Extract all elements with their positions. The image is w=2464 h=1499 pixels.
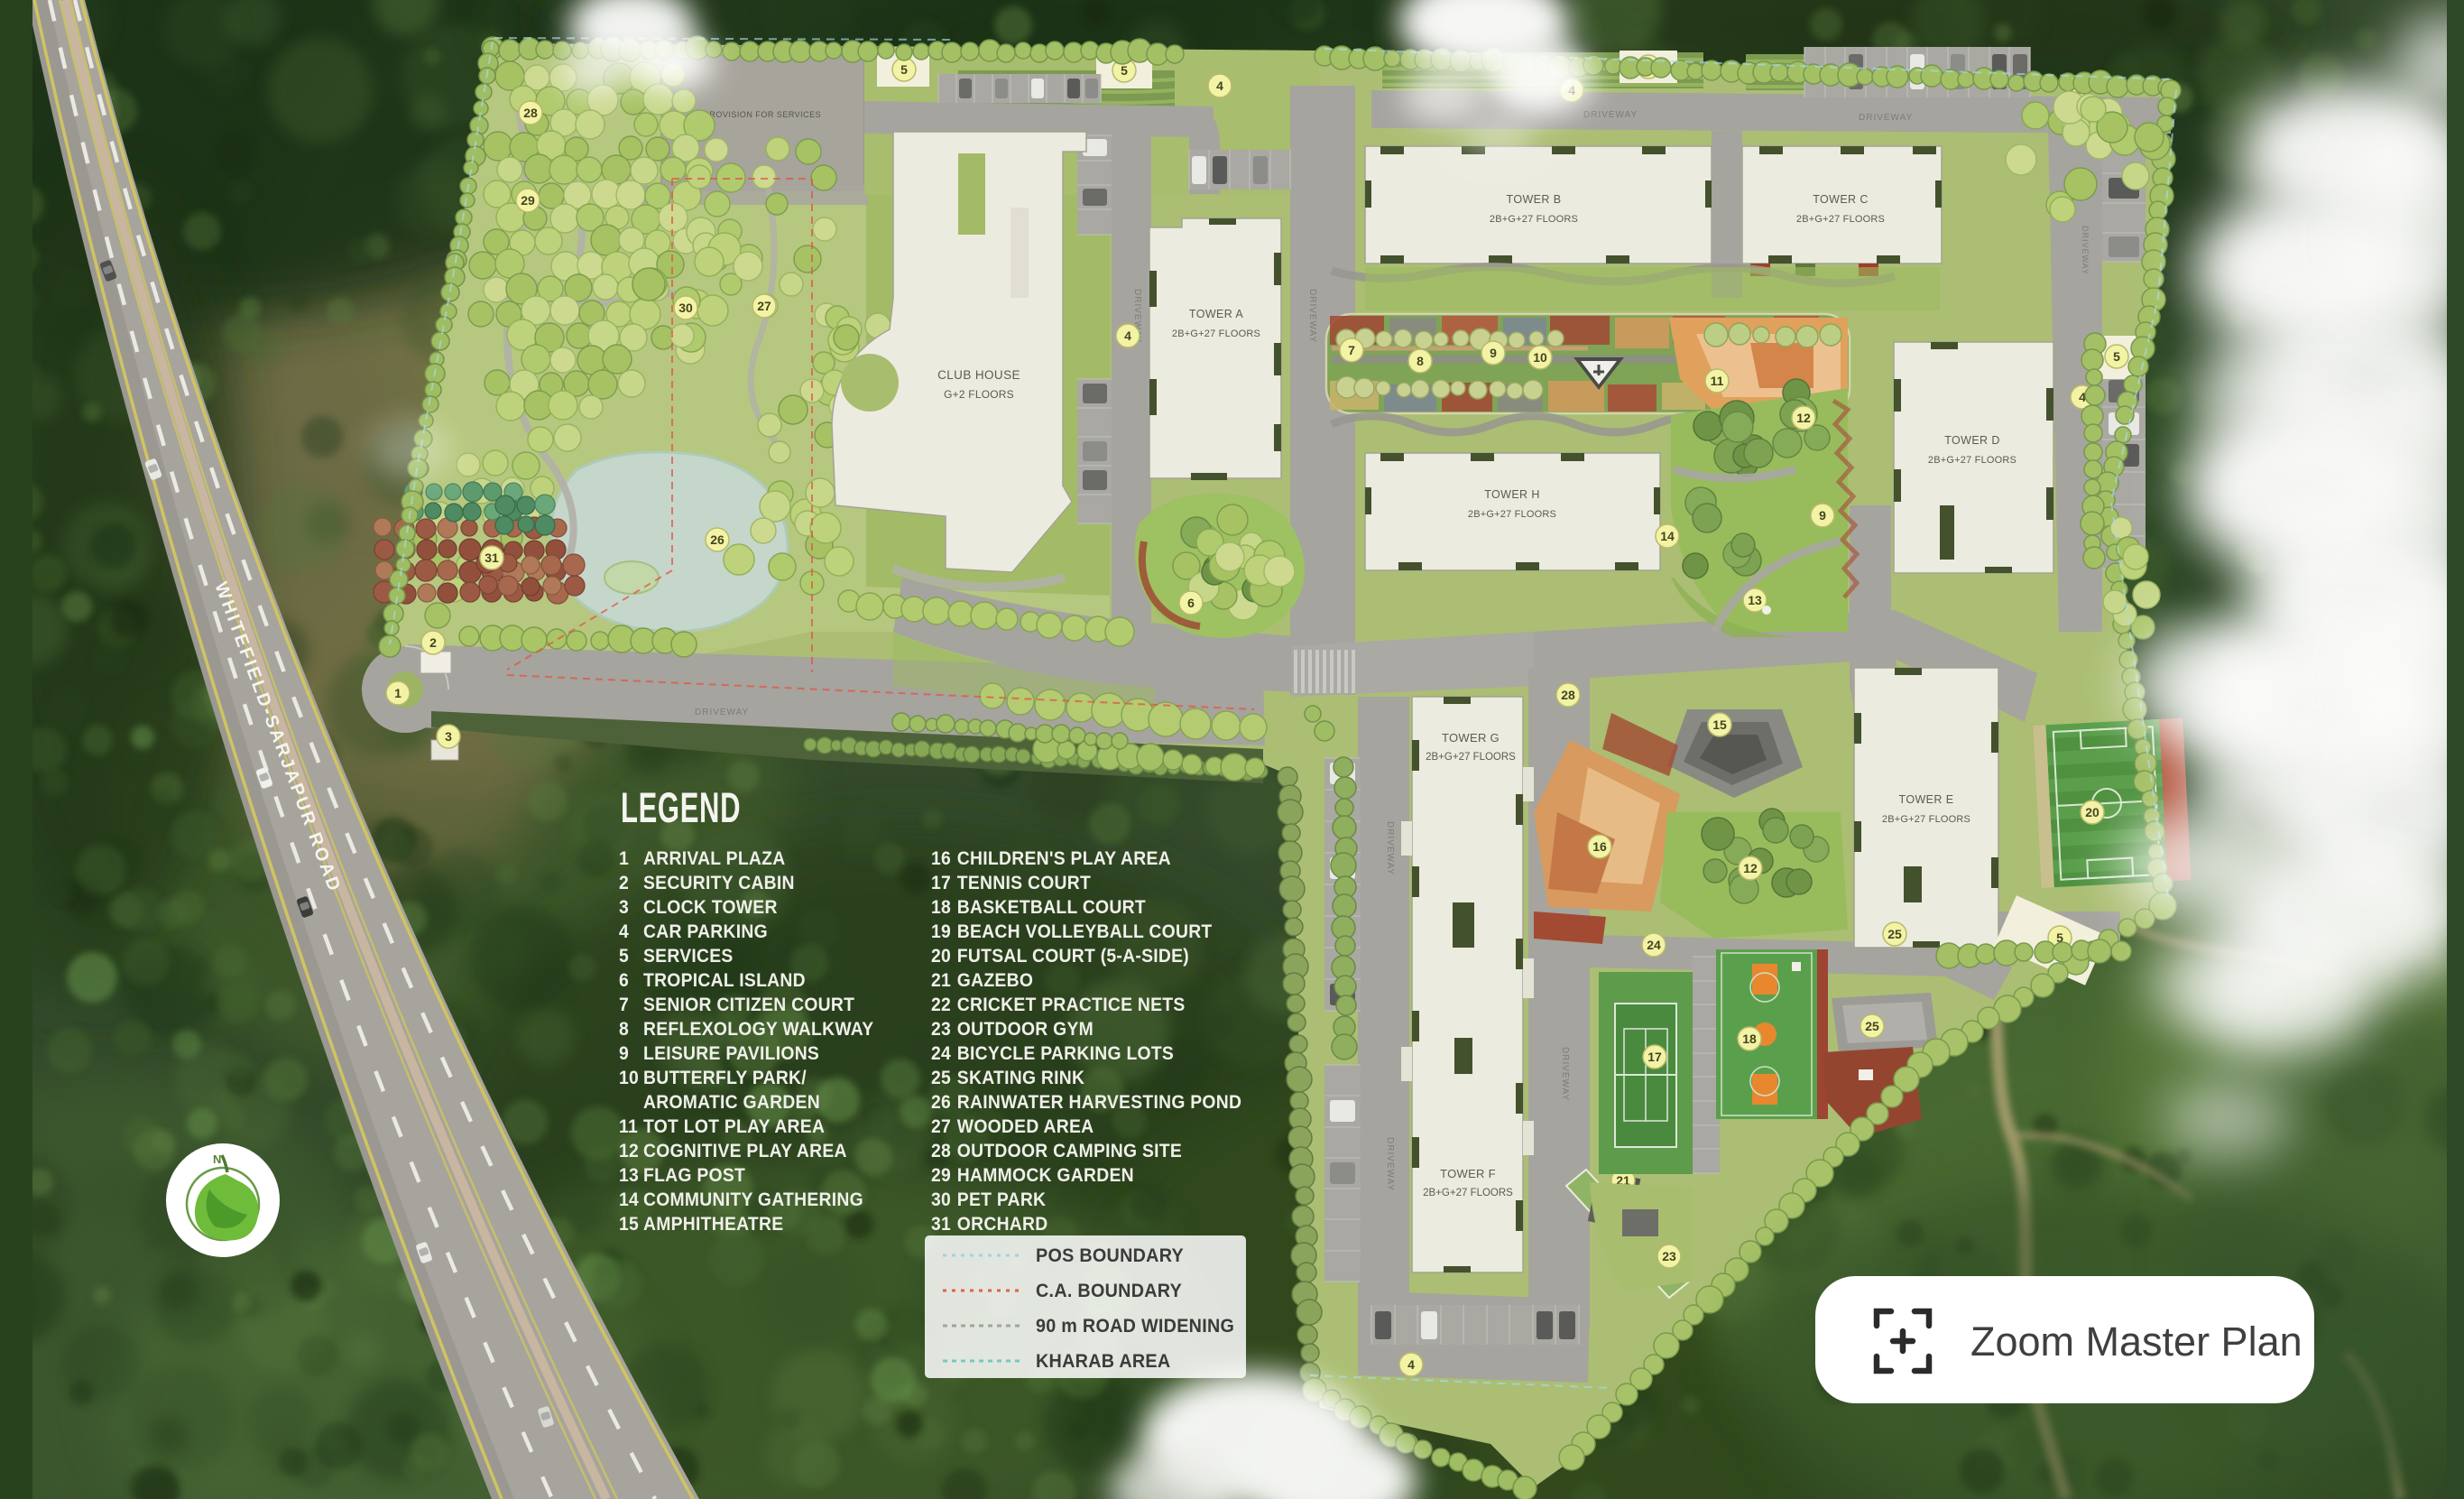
svg-text:25: 25	[1887, 927, 1902, 941]
svg-text:COMMUNITY GATHERING: COMMUNITY GATHERING	[643, 1189, 863, 1210]
svg-text:CAR PARKING: CAR PARKING	[643, 921, 768, 942]
svg-text:25: 25	[931, 1067, 951, 1088]
svg-text:TENNIS COURT: TENNIS COURT	[957, 872, 1091, 893]
svg-text:25: 25	[1865, 1019, 1879, 1033]
svg-text:OUTDOOR GYM: OUTDOOR GYM	[957, 1018, 1094, 1040]
svg-text:1: 1	[394, 686, 401, 700]
svg-text:POS BOUNDARY: POS BOUNDARY	[1036, 1245, 1184, 1266]
svg-text:7: 7	[1348, 343, 1355, 357]
svg-text:CLUB HOUSE: CLUB HOUSE	[937, 368, 1020, 382]
svg-text:TOWER F: TOWER F	[1440, 1167, 1496, 1180]
svg-text:31: 31	[484, 551, 499, 565]
svg-text:ORCHARD: ORCHARD	[957, 1213, 1048, 1235]
svg-text:13: 13	[1748, 593, 1762, 607]
svg-text:31: 31	[931, 1213, 951, 1235]
svg-text:DRIVEWAY: DRIVEWAY	[695, 708, 749, 717]
svg-text:7: 7	[619, 994, 629, 1015]
svg-text:BICYCLE PARKING LOTS: BICYCLE PARKING LOTS	[957, 1042, 1174, 1064]
svg-text:14: 14	[1660, 529, 1675, 543]
svg-text:BASKETBALL COURT: BASKETBALL COURT	[957, 896, 1146, 918]
svg-text:OUTDOOR CAMPING SITE: OUTDOOR CAMPING SITE	[957, 1140, 1182, 1161]
svg-text:4: 4	[1124, 328, 1131, 343]
svg-text:TOWER H: TOWER H	[1484, 488, 1540, 501]
svg-text:2B+G+27 FLOORS: 2B+G+27 FLOORS	[1796, 214, 1885, 225]
svg-text:13: 13	[619, 1164, 639, 1186]
svg-text:16: 16	[931, 847, 951, 869]
svg-text:12: 12	[1743, 861, 1758, 875]
svg-text:ARRIVAL PLAZA: ARRIVAL PLAZA	[643, 847, 785, 869]
svg-text:18: 18	[931, 896, 951, 918]
svg-text:DRIVEWAY: DRIVEWAY	[1385, 1137, 1395, 1191]
svg-text:2B+G+27 FLOORS: 2B+G+27 FLOORS	[1490, 214, 1578, 225]
svg-text:15: 15	[1712, 717, 1727, 732]
svg-text:PROVISION FOR SERVICES: PROVISION FOR SERVICES	[704, 110, 821, 119]
svg-text:2B+G+27 FLOORS: 2B+G+27 FLOORS	[1882, 814, 1970, 825]
svg-text:CLOCK TOWER: CLOCK TOWER	[643, 896, 778, 918]
svg-text:TOWER D: TOWER D	[1944, 434, 2000, 447]
svg-text:15: 15	[619, 1213, 639, 1235]
svg-text:AROMATIC GARDEN: AROMATIC GARDEN	[643, 1091, 820, 1113]
svg-text:REFLEXOLOGY WALKWAY: REFLEXOLOGY WALKWAY	[643, 1018, 874, 1040]
svg-text:G+2 FLOORS: G+2 FLOORS	[944, 388, 1014, 401]
svg-text:SENIOR CITIZEN COURT: SENIOR CITIZEN COURT	[643, 994, 854, 1015]
svg-text:8: 8	[1417, 354, 1424, 368]
svg-text:FUTSAL COURT (5-A-SIDE): FUTSAL COURT (5-A-SIDE)	[957, 945, 1189, 967]
svg-text:COGNITIVE PLAY AREA: COGNITIVE PLAY AREA	[643, 1140, 847, 1161]
svg-text:11: 11	[619, 1115, 638, 1137]
svg-text:4: 4	[1407, 1357, 1415, 1372]
svg-text:DRIVEWAY: DRIVEWAY	[1385, 821, 1395, 875]
svg-text:TOWER E: TOWER E	[1899, 793, 1954, 806]
svg-text:TOT LOT PLAY AREA: TOT LOT PLAY AREA	[643, 1115, 825, 1137]
svg-text:2B+G+27 FLOORS: 2B+G+27 FLOORS	[1423, 1188, 1513, 1198]
svg-text:27: 27	[931, 1115, 951, 1137]
svg-text:17: 17	[931, 872, 951, 893]
svg-text:29: 29	[521, 193, 535, 208]
svg-text:17: 17	[1647, 1050, 1662, 1064]
svg-text:DRIVEWAY: DRIVEWAY	[1859, 113, 1913, 123]
svg-text:6: 6	[1187, 596, 1195, 610]
svg-text:PET PARK: PET PARK	[957, 1189, 1046, 1210]
svg-text:2: 2	[619, 872, 629, 893]
svg-text:WOODED AREA: WOODED AREA	[957, 1115, 1094, 1137]
svg-text:29: 29	[931, 1164, 951, 1186]
svg-text:28: 28	[523, 106, 538, 120]
svg-text:9: 9	[1490, 346, 1497, 360]
svg-text:9: 9	[619, 1042, 629, 1064]
svg-text:23: 23	[931, 1018, 951, 1040]
svg-text:Zoom Master Plan: Zoom Master Plan	[1970, 1319, 2303, 1365]
svg-text:24: 24	[1647, 938, 1661, 952]
svg-text:28: 28	[931, 1140, 951, 1161]
svg-text:HAMMOCK GARDEN: HAMMOCK GARDEN	[957, 1164, 1134, 1186]
svg-text:3: 3	[445, 729, 452, 744]
svg-text:11: 11	[1711, 374, 1724, 388]
svg-text:TOWER C: TOWER C	[1813, 193, 1869, 206]
svg-text:2B+G+27 FLOORS: 2B+G+27 FLOORS	[1426, 752, 1516, 763]
svg-text:DRIVEWAY: DRIVEWAY	[1560, 1047, 1570, 1101]
svg-text:12: 12	[619, 1140, 639, 1161]
svg-text:N: N	[213, 1152, 221, 1166]
svg-text:TROPICAL ISLAND: TROPICAL ISLAND	[643, 969, 806, 991]
svg-text:3: 3	[619, 896, 629, 918]
svg-text:14: 14	[619, 1189, 639, 1210]
svg-text:28: 28	[1561, 688, 1575, 702]
svg-text:CRICKET PRACTICE NETS: CRICKET PRACTICE NETS	[957, 994, 1186, 1015]
svg-text:TOWER A: TOWER A	[1189, 308, 1243, 320]
svg-text:8: 8	[619, 1018, 629, 1040]
svg-text:DRIVEWAY: DRIVEWAY	[1307, 289, 1317, 343]
svg-text:24: 24	[931, 1042, 951, 1064]
svg-text:6: 6	[619, 969, 629, 991]
svg-text:2B+G+27 FLOORS: 2B+G+27 FLOORS	[1468, 509, 1556, 520]
svg-text:22: 22	[931, 994, 951, 1015]
svg-text:SKATING RINK: SKATING RINK	[957, 1067, 1084, 1088]
svg-text:GAZEBO: GAZEBO	[957, 969, 1033, 991]
svg-text:4: 4	[619, 921, 629, 942]
svg-text:23: 23	[1662, 1249, 1676, 1263]
svg-text:AMPHITHEATRE: AMPHITHEATRE	[643, 1213, 783, 1235]
svg-text:5: 5	[619, 945, 629, 967]
svg-text:27: 27	[757, 299, 771, 313]
svg-text:SERVICES: SERVICES	[643, 945, 734, 967]
svg-text:SECURITY CABIN: SECURITY CABIN	[643, 872, 795, 893]
svg-text:19: 19	[931, 921, 951, 942]
svg-text:2: 2	[429, 635, 437, 650]
svg-text:FLAG POST: FLAG POST	[643, 1164, 745, 1186]
svg-text:BUTTERFLY PARK/: BUTTERFLY PARK/	[643, 1067, 807, 1088]
svg-text:10: 10	[1533, 350, 1547, 365]
svg-text:21: 21	[931, 969, 951, 991]
svg-text:12: 12	[1796, 411, 1811, 425]
svg-text:20: 20	[2085, 805, 2099, 819]
svg-text:1: 1	[619, 847, 629, 869]
svg-text:20: 20	[931, 945, 951, 967]
svg-text:2B+G+27 FLOORS: 2B+G+27 FLOORS	[1172, 328, 1260, 339]
svg-text:18: 18	[1742, 1032, 1757, 1046]
svg-text:10: 10	[619, 1067, 639, 1088]
svg-text:30: 30	[931, 1189, 951, 1210]
svg-text:26: 26	[710, 532, 724, 547]
svg-text:5: 5	[2113, 349, 2120, 364]
svg-text:9: 9	[1819, 508, 1826, 523]
svg-text:TOWER G: TOWER G	[1442, 731, 1500, 745]
svg-text:BEACH VOLLEYBALL COURT: BEACH VOLLEYBALL COURT	[957, 921, 1213, 942]
svg-text:5: 5	[1121, 63, 1128, 78]
svg-text:KHARAB AREA: KHARAB AREA	[1036, 1350, 1170, 1372]
svg-text:CHILDREN'S PLAY AREA: CHILDREN'S PLAY AREA	[957, 847, 1171, 869]
svg-text:DRIVEWAY: DRIVEWAY	[1583, 110, 1638, 120]
svg-text:26: 26	[931, 1091, 951, 1113]
svg-text:90 m ROAD WIDENING: 90 m ROAD WIDENING	[1036, 1315, 1234, 1337]
svg-text:DRIVEWAY: DRIVEWAY	[2081, 226, 2090, 275]
svg-text:TOWER B: TOWER B	[1507, 193, 1562, 206]
svg-text:16: 16	[1592, 839, 1607, 854]
svg-text:LEISURE PAVILIONS: LEISURE PAVILIONS	[643, 1042, 819, 1064]
svg-text:LEGEND: LEGEND	[621, 785, 741, 832]
svg-text:4: 4	[1216, 79, 1223, 93]
svg-text:30: 30	[678, 301, 693, 315]
svg-text:RAINWATER HARVESTING POND: RAINWATER HARVESTING POND	[957, 1091, 1241, 1113]
svg-text:5: 5	[900, 62, 908, 77]
svg-text:C.A. BOUNDARY: C.A. BOUNDARY	[1036, 1280, 1182, 1301]
svg-text:2B+G+27 FLOORS: 2B+G+27 FLOORS	[1928, 455, 2016, 466]
